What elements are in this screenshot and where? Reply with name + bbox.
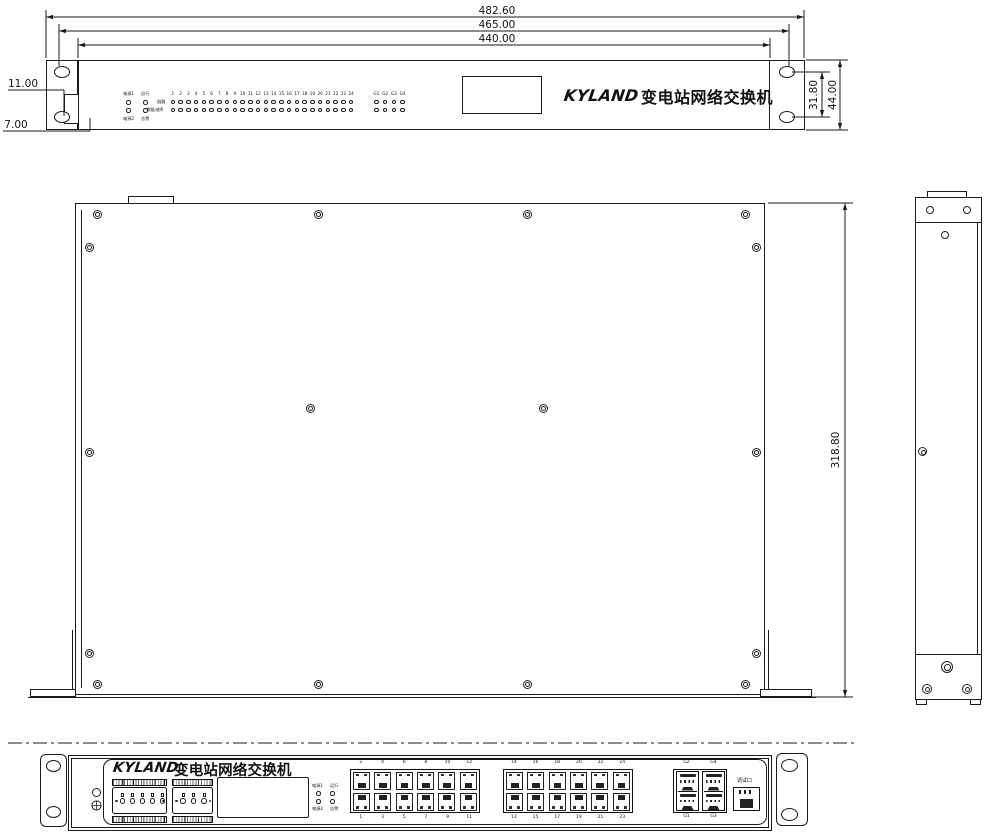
mount-hole	[781, 808, 798, 821]
led-row-link-label: 链路	[157, 99, 165, 104]
gb-top-labels: G2G4	[673, 760, 727, 766]
terminal1-bottom-label-strip	[112, 816, 167, 823]
rj45-port	[613, 793, 630, 811]
g-port-block	[673, 769, 727, 813]
port-group-2	[503, 769, 633, 813]
g-port-column	[676, 771, 699, 811]
rj45-port	[527, 772, 544, 790]
dim-panel-height: 44.00	[827, 80, 839, 110]
led-row-speed-label: 数据/速率	[147, 107, 163, 112]
mount-hole	[46, 760, 61, 772]
screw	[752, 243, 761, 252]
screw	[741, 680, 750, 689]
screw	[962, 684, 972, 694]
g-port-column	[702, 771, 725, 811]
panel-screw-hole	[92, 788, 101, 797]
led-label-power1: 电源1	[312, 783, 323, 788]
rj45-port	[353, 772, 370, 790]
screw	[85, 243, 94, 252]
mount-hole	[779, 66, 795, 78]
tv-led-row2	[169, 107, 355, 113]
tv-port-numbers: 123456789101112131415161718192021222324	[169, 91, 355, 97]
screw	[85, 448, 94, 457]
led-label-run: 运行	[141, 91, 149, 96]
side-foot-tab	[916, 699, 927, 705]
rj45-port	[549, 772, 566, 790]
screw	[314, 210, 323, 219]
side-inner-edge	[977, 222, 978, 654]
terminal1-top-label-strip	[112, 779, 167, 786]
rj45-port	[460, 772, 477, 790]
switch-engineering-drawing: 电源1 运行 电源2 告警 链路 数据/速率 12345678910111213…	[0, 0, 1000, 836]
led-label-power1: 电源1	[123, 91, 134, 96]
dim-overall-width: 482.60	[479, 5, 516, 17]
led-label-alarm: 告警	[141, 116, 149, 121]
rj45-port	[549, 793, 566, 811]
rj45-port	[417, 793, 434, 811]
power2-led	[126, 108, 131, 113]
plan-right-foot	[760, 689, 812, 697]
screw	[93, 210, 102, 219]
run-led	[143, 100, 148, 105]
terminal2-bottom-label-strip	[172, 816, 213, 823]
screw	[85, 649, 94, 658]
screw	[314, 680, 323, 689]
mount-hole	[46, 806, 61, 818]
rj45-port	[396, 772, 413, 790]
pg2-bottom-numbers: 131517192123	[503, 815, 633, 821]
side-hole	[926, 206, 934, 214]
side-top-band-line	[915, 222, 982, 223]
plan-base-line	[28, 697, 816, 698]
rj45-port	[613, 772, 630, 790]
rj45-port	[396, 793, 413, 811]
screw	[922, 684, 932, 694]
side-hole	[963, 206, 971, 214]
dim-ear-lower: 7.00	[4, 119, 27, 131]
led-label-power2: 电源2	[123, 116, 134, 121]
rj45-port	[527, 793, 544, 811]
port-group-1	[350, 769, 480, 813]
led-label-alarm: 告警	[330, 806, 338, 811]
led-label-run: 运行	[330, 783, 338, 788]
dim-chassis-depth: 318.80	[830, 432, 842, 469]
screw	[752, 448, 761, 457]
screw	[523, 210, 532, 219]
terminal2-top-label-strip	[172, 779, 213, 786]
gb-bottom-labels: G1G3	[673, 814, 727, 820]
sfp-port	[704, 773, 724, 792]
debug-port-label: 调试口	[737, 779, 752, 784]
tv-g-led1	[372, 99, 407, 105]
screw	[941, 661, 953, 673]
rj45-port	[591, 793, 608, 811]
screw	[523, 680, 532, 689]
rj45-port	[506, 772, 523, 790]
side-hole	[941, 231, 949, 239]
rj45-port	[438, 772, 455, 790]
tv-g-numbers: G1G2G3G4	[372, 91, 407, 97]
rj45-port	[417, 772, 434, 790]
plan-body	[75, 203, 765, 695]
power1-led	[316, 791, 321, 796]
screw	[539, 404, 548, 413]
screw	[752, 649, 761, 658]
plan-left-foot	[30, 689, 76, 697]
plan-inner-edge	[81, 210, 82, 688]
power2-led	[316, 799, 321, 804]
rj45-port	[591, 772, 608, 790]
display-window	[462, 76, 542, 114]
display-window	[217, 777, 309, 818]
dim-body-width: 440.00	[479, 33, 516, 45]
dim-ear-upper: 11.00	[8, 78, 38, 90]
power1-led	[126, 100, 131, 105]
screw	[741, 210, 750, 219]
mount-hole	[781, 759, 798, 772]
plan-left-foot-web	[72, 630, 73, 689]
plan-right-foot-web	[768, 630, 769, 689]
earth-screw-icon	[91, 800, 102, 811]
product-name: 变电站网络交换机	[641, 84, 773, 108]
dim-hole-span: 465.00	[479, 19, 516, 31]
tv-led-row1	[169, 99, 355, 105]
pg1-bottom-numbers: 1357911	[350, 815, 480, 821]
alarm-terminal-block	[172, 787, 213, 814]
rj45-port	[438, 793, 455, 811]
mount-hole	[779, 111, 795, 123]
alarm-led	[330, 799, 335, 804]
sfp-port	[704, 792, 724, 811]
side-foot-tab	[970, 699, 981, 705]
screw	[93, 680, 102, 689]
rj45-port	[570, 772, 587, 790]
pg1-top-numbers: 24681012	[350, 760, 480, 766]
sfp-port	[678, 773, 698, 792]
tv-g-led2	[372, 107, 407, 113]
screw	[918, 447, 927, 456]
rj45-port	[374, 793, 391, 811]
led-label-power2: 电源2	[312, 806, 323, 811]
screw	[306, 404, 315, 413]
rj45-port	[506, 793, 523, 811]
pg2-top-numbers: 141618202224	[503, 760, 633, 766]
rj45-port	[460, 793, 477, 811]
rj45-port	[353, 793, 370, 811]
pg1-grid	[351, 770, 479, 812]
run-led	[330, 791, 335, 796]
rj45-port	[374, 772, 391, 790]
mount-hole	[54, 66, 70, 78]
side-bottom-band-line	[915, 654, 982, 655]
rj45-port	[570, 793, 587, 811]
sfp-port	[678, 792, 698, 811]
pg2-grid	[504, 770, 632, 812]
kyland-logo: KYLAND	[563, 86, 640, 105]
power-terminal-block	[112, 787, 167, 814]
mount-hole	[54, 111, 70, 123]
debug-port	[733, 787, 760, 811]
dim-ear-hole-span: 31.80	[808, 80, 820, 110]
kyland-logo: KYLAND	[112, 760, 180, 776]
